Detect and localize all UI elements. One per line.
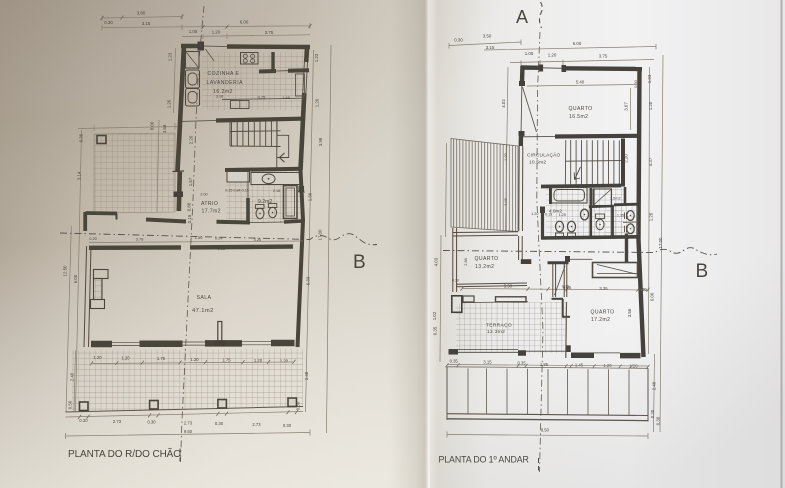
svg-text:6.39: 6.39 xyxy=(306,276,311,285)
svg-text:3.75: 3.75 xyxy=(265,30,274,35)
svg-text:ATRIO: ATRIO xyxy=(201,201,218,207)
svg-text:0.30: 0.30 xyxy=(104,20,113,25)
svg-text:3.15: 3.15 xyxy=(483,360,492,365)
svg-text:1.20: 1.20 xyxy=(167,99,172,108)
svg-text:QUARTO: QUARTO xyxy=(569,106,593,112)
svg-text:8.00: 8.00 xyxy=(150,121,155,130)
svg-text:0.30: 0.30 xyxy=(147,420,156,425)
svg-text:0.50: 0.50 xyxy=(68,400,73,409)
svg-text:B: B xyxy=(353,252,366,273)
svg-text:12.3m2: 12.3m2 xyxy=(487,329,505,335)
svg-text:3.56: 3.56 xyxy=(627,308,632,317)
svg-text:3.98: 3.98 xyxy=(318,137,323,146)
svg-text:3.50: 3.50 xyxy=(483,34,492,39)
svg-text:0.30: 0.30 xyxy=(283,423,292,428)
svg-text:4.03: 4.03 xyxy=(434,257,439,266)
svg-text:9.50: 9.50 xyxy=(541,428,550,433)
svg-text:3.18: 3.18 xyxy=(216,94,225,99)
svg-text:0.30: 0.30 xyxy=(79,418,88,423)
svg-text:0.30: 0.30 xyxy=(650,409,655,418)
svg-text:SALA: SALA xyxy=(197,295,212,301)
svg-text:1.20: 1.20 xyxy=(212,30,221,35)
svg-text:2.88: 2.88 xyxy=(464,258,468,265)
svg-text:1.02: 1.02 xyxy=(432,311,437,320)
svg-text:QUARTO: QUARTO xyxy=(591,310,615,316)
svg-text:4.37: 4.37 xyxy=(648,157,653,166)
svg-text:0.35: 0.35 xyxy=(450,359,459,364)
svg-text:3.14: 3.14 xyxy=(77,171,82,180)
svg-text:0.88: 0.88 xyxy=(187,202,192,211)
svg-text:2.20: 2.20 xyxy=(189,135,194,144)
svg-text:B: B xyxy=(696,261,709,282)
svg-text:COZINHA E: COZINHA E xyxy=(208,71,240,77)
svg-text:3.75: 3.75 xyxy=(599,54,608,59)
svg-text:10.5m2: 10.5m2 xyxy=(529,160,546,166)
svg-text:0.20: 0.20 xyxy=(89,236,97,241)
svg-text:9.50: 9.50 xyxy=(184,429,193,434)
svg-text:1.23: 1.23 xyxy=(314,53,319,62)
svg-text:0.30: 0.30 xyxy=(656,416,661,425)
svg-text:1.35: 1.35 xyxy=(617,214,624,218)
svg-text:1.75: 1.75 xyxy=(157,356,166,361)
svg-text:2.73: 2.73 xyxy=(184,421,193,426)
svg-text:1.20: 1.20 xyxy=(93,355,102,360)
svg-text:0.15 0.84 0.15: 0.15 0.84 0.15 xyxy=(225,189,249,193)
svg-text:2.73: 2.73 xyxy=(252,422,261,427)
svg-text:0.75: 0.75 xyxy=(258,95,267,100)
svg-text:PLANTA DO 1º ANDAR: PLANTA DO 1º ANDAR xyxy=(439,455,529,465)
svg-text:5.50: 5.50 xyxy=(504,284,513,289)
svg-text:2.18: 2.18 xyxy=(273,189,280,193)
svg-text:1.85: 1.85 xyxy=(540,362,549,367)
svg-text:0.15: 0.15 xyxy=(545,213,552,217)
svg-text:TERRAÇO: TERRAÇO xyxy=(486,323,512,329)
svg-text:3.35: 3.35 xyxy=(599,286,608,291)
svg-text:6.00: 6.00 xyxy=(73,274,78,283)
svg-text:6.00: 6.00 xyxy=(650,292,655,301)
svg-text:1.23: 1.23 xyxy=(647,74,652,83)
svg-text:3.80: 3.80 xyxy=(137,11,146,16)
svg-text:0.30: 0.30 xyxy=(79,133,84,142)
svg-text:6.00: 6.00 xyxy=(573,41,582,46)
svg-text:3.15: 3.15 xyxy=(486,45,495,50)
svg-text:1.50: 1.50 xyxy=(195,235,203,240)
svg-text:1.20: 1.20 xyxy=(121,356,130,361)
svg-text:1.23: 1.23 xyxy=(168,52,173,61)
svg-text:1.75: 1.75 xyxy=(222,358,231,363)
svg-text:1.45: 1.45 xyxy=(282,95,291,100)
svg-text:9.2m2: 9.2m2 xyxy=(258,199,272,205)
svg-text:12.50: 12.50 xyxy=(63,265,68,277)
svg-text:0.24: 0.24 xyxy=(215,236,223,241)
svg-text:PLANTA DO R/DO CHÃO: PLANTA DO R/DO CHÃO xyxy=(68,447,181,460)
svg-text:0.30: 0.30 xyxy=(454,38,463,43)
svg-text:1.20: 1.20 xyxy=(190,357,199,362)
svg-text:1.20: 1.20 xyxy=(280,359,289,364)
svg-text:1.25: 1.25 xyxy=(559,213,566,217)
svg-text:2.73: 2.73 xyxy=(113,419,122,424)
svg-text:1.5m2: 1.5m2 xyxy=(610,197,621,201)
svg-text:1.20: 1.20 xyxy=(649,212,654,221)
svg-text:2.40: 2.40 xyxy=(304,371,309,380)
svg-text:2.40: 2.40 xyxy=(652,381,657,390)
svg-text:LAVANDERIA: LAVANDERIA xyxy=(207,80,244,86)
svg-text:0.30: 0.30 xyxy=(215,421,224,426)
svg-text:CIRCULAÇÃO: CIRCULAÇÃO xyxy=(527,152,561,159)
svg-text:47.1m2: 47.1m2 xyxy=(192,308,214,314)
svg-text:6.00: 6.00 xyxy=(240,20,249,25)
svg-text:1.20: 1.20 xyxy=(315,98,320,107)
svg-text:2.00: 2.00 xyxy=(200,193,207,197)
svg-text:1.05: 1.05 xyxy=(525,51,534,56)
svg-text:1.20: 1.20 xyxy=(548,53,557,58)
svg-text:17.7m2: 17.7m2 xyxy=(202,209,221,215)
svg-text:0.15: 0.15 xyxy=(187,214,192,223)
svg-text:1.20: 1.20 xyxy=(531,212,538,216)
svg-text:5.40: 5.40 xyxy=(576,80,585,85)
svg-text:3.78: 3.78 xyxy=(136,237,144,242)
svg-text:A: A xyxy=(516,7,528,27)
svg-text:4.02: 4.02 xyxy=(501,99,506,108)
svg-text:1.57: 1.57 xyxy=(188,177,193,186)
svg-text:1.05: 1.05 xyxy=(189,29,198,34)
svg-text:0.35: 0.35 xyxy=(433,326,438,335)
svg-text:17.00: 17.00 xyxy=(658,237,663,249)
svg-text:16.5m2: 16.5m2 xyxy=(569,114,588,120)
svg-text:3.07: 3.07 xyxy=(624,102,629,111)
svg-text:0.30: 0.30 xyxy=(639,287,648,292)
svg-text:13.2m2: 13.2m2 xyxy=(475,264,494,270)
svg-text:3.58: 3.58 xyxy=(162,124,167,133)
svg-text:QUARTO: QUARTO xyxy=(475,256,499,262)
svg-text:17.00: 17.00 xyxy=(318,229,323,241)
svg-text:1.20: 1.20 xyxy=(648,101,653,110)
svg-text:1.45: 1.45 xyxy=(575,363,584,368)
svg-text:1.30: 1.30 xyxy=(308,192,313,201)
svg-text:3.15: 3.15 xyxy=(142,21,151,26)
svg-text:17.2m2: 17.2m2 xyxy=(591,317,610,323)
